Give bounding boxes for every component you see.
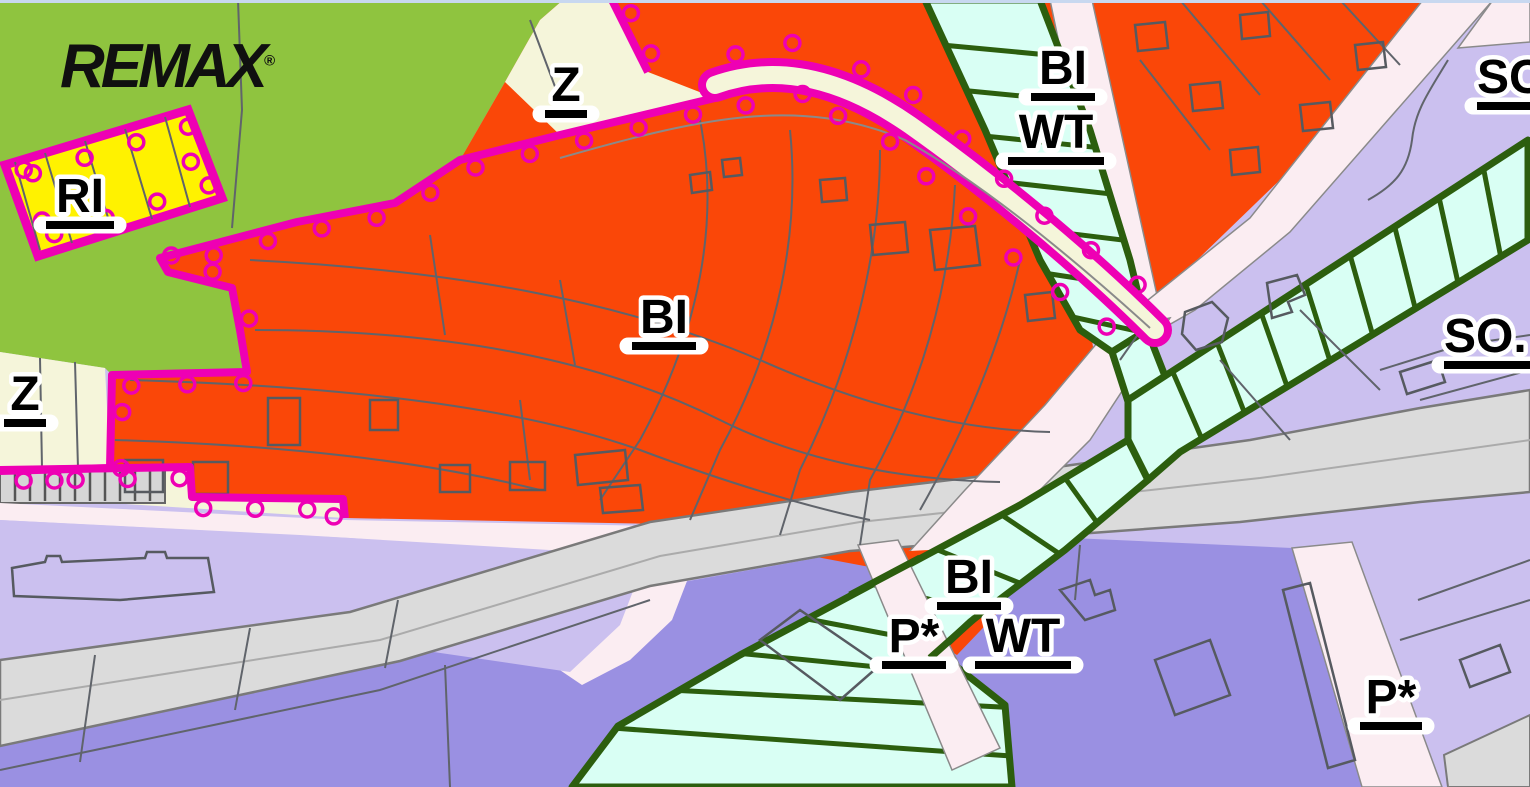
label-wt-top: WT	[1004, 106, 1108, 161]
label-p-star-south: P*	[878, 610, 950, 665]
label-z-top-text: Z	[551, 59, 580, 112]
registered-trademark-icon: ®	[264, 52, 275, 69]
label-z-left-text: Z	[10, 368, 39, 421]
label-wt-south-text: WT	[986, 610, 1061, 663]
label-so-right-text: SO.	[1444, 310, 1527, 363]
remax-logo: REMAX®	[60, 36, 275, 98]
label-wt-top-text: WT	[1019, 106, 1094, 159]
label-p-star-southeast: P*	[1356, 671, 1426, 726]
label-bi-south-text: BI	[945, 551, 993, 604]
label-ri-text: RI	[56, 170, 104, 223]
map-canvas: Z RI Z BI BI WT SO SO. BI P* WT P*	[0, 0, 1530, 787]
zoning-map: Z RI Z BI BI WT SO SO. BI P* WT P* REMAX…	[0, 0, 1530, 787]
label-so-top-right-text: SO	[1477, 51, 1530, 104]
label-bi-main-text: BI	[640, 291, 688, 344]
top-edge-strip	[0, 0, 1530, 3]
remax-logo-text: REMAX	[60, 32, 264, 101]
label-p-star-southeast-text: P*	[1366, 671, 1417, 724]
label-so-right: SO.	[1440, 310, 1530, 365]
label-so-top-right: SO	[1473, 51, 1530, 106]
label-wt-south: WT	[971, 610, 1075, 665]
label-bi-top-text: BI	[1039, 42, 1087, 95]
label-p-star-south-text: P*	[889, 610, 940, 663]
